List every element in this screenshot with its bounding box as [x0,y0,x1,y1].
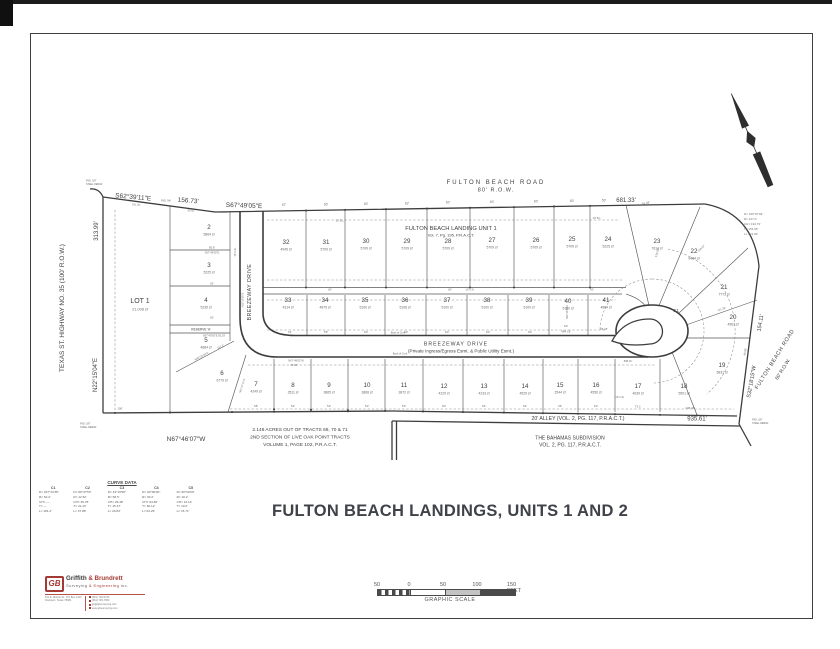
lot-corner-dot [273,411,275,413]
curve-value: L= 15.71' [174,509,208,514]
lot-number: 11 [401,382,408,389]
lot-area: 5864 sf [203,233,214,237]
dim-label: 60' [210,316,214,320]
lot-number: 36 [402,297,409,304]
fulton-beach-road-right-label: FULTON BEACH ROAD [754,328,796,390]
dim-label: 10' B.L. [593,216,602,220]
lot-number: 20 [730,314,737,321]
lot-corner-dot [513,286,515,288]
dim-label: 15' U.E. [233,247,237,256]
bahamas-label: THE BAHAMAS SUBDIVISION [535,436,605,442]
lot-area: 5831 sf [716,371,727,375]
dim-label: N67°49'02"W [288,359,304,363]
dim-label: 10' U.E. [615,395,624,399]
lot-area: 5100 sf [441,306,452,310]
dim-label: 64' [482,404,486,408]
curve-column: C3D= 34°19'58"R= 58.5'CH= 29.38'T= 15.37… [105,486,139,514]
lot-area: 3511 sf [288,391,299,395]
plat-drawing: 57'60'60'62'60'60'60'60'50'55.48'100.28'… [0,0,840,649]
dim-label: 65' [210,282,214,286]
dim-label: 50' [602,199,607,203]
lot-number: 18 [681,383,688,390]
lot-area: 3868 sf [361,391,372,395]
lot-area: 5235 sf [200,306,211,310]
lot-number: 3 [207,262,211,269]
dim-label: 53' [402,404,406,408]
lot-area: 7614 sf [651,247,662,251]
dim-label: 60' [490,200,495,204]
dim-label: 58' [254,404,258,408]
lot-number: 31 [323,239,330,246]
surveyor-name-2: Brundrett [95,575,123,582]
lot-number: 41 [603,297,610,304]
dim-label: 25.18' [600,327,608,331]
lot-number: 40 [565,298,572,305]
dim-label: S67°49'05"E [205,251,220,255]
dim-label: 10' B.L. [336,219,345,223]
lot-corner-dot [577,413,579,415]
lot-area: 5709 sf [401,247,412,251]
lot-number: 9 [327,382,331,389]
graphic-scale: 50 0 50 100 150 FEET GRAPHIC SCALE [360,582,540,603]
dim-31399: 313.99' [94,221,100,241]
lot-corner-dot [344,209,346,211]
lot-area: 5100 sf [359,306,370,310]
dim-label: 60' [445,330,449,334]
lot-area: 4556 sf [590,391,601,395]
curve-column: C5D= 90°00'00"R= 10.2'CH= 14.14'T= 10.2'… [174,486,208,514]
lot-area: 8484 sf [688,257,699,261]
fax-icon [89,600,91,602]
surveyor-phones: (361) 729-5476 (361) 729-7953 gb@gbsurve… [85,596,118,612]
lot-area: 4249 sf [250,390,261,394]
lot-number: 21 [721,284,728,291]
dim-label: 60' [364,202,369,206]
dim-label: 55' [324,330,328,334]
curve-value: L= 37.88' [70,509,104,514]
lot-corner-dot [426,286,428,288]
curve-data-table: CURVE DATAC1D= 267°34'38"R= 52.2'CH= —T=… [36,480,208,514]
dim-label: R= 127.0' [744,217,757,221]
dim-label: 117.2' [216,343,225,350]
dim-label: FND. MK [161,200,171,203]
web-icon [89,607,91,609]
address-line-2: Rockport, Texas 78381 [45,599,82,603]
dim-label: N22°10'55"E [241,292,245,307]
lot-area: 5709 sf [360,247,371,251]
dim-label: 50.69' [220,210,228,214]
dim-label: 60' [528,330,532,334]
lot-number: 19 [719,362,726,369]
web-text: www.gbsurveying.com [92,607,118,610]
curve-column: C4D= 90°00'00"R= 60.2'CH= 64.86'T= 60.12… [139,486,173,514]
lot-corner-dot [305,209,307,211]
lot-corner-dot [384,410,386,412]
lot-corner-dot [169,411,171,413]
lot-number: 14 [522,383,529,390]
lot-area: 5190 sf [562,307,573,311]
lot-corner-dot [344,286,346,288]
dim-15673: 156.73' [177,197,199,206]
lot-corner-dot [305,286,307,288]
lot-area: 2544 sf [554,391,565,395]
lot-corner-dot [513,206,515,208]
lot-corner-dot [385,208,387,210]
dim-label: 49.98' [742,347,747,356]
lot-corner-dot [659,414,661,416]
dim-label: 61' [288,330,292,334]
lot-number: 38 [484,297,491,304]
scale-tick-0: 0 [407,582,410,588]
lot-area: 5225 sf [602,245,613,249]
lot-area: 5100 sf [481,306,492,310]
plat-title: FULTON BEACH LANDINGS, UNITS 1 AND 2 [250,502,650,521]
acreage-note-2: 2ND SECTION OF LIVE OAK POINT TRACTS [250,435,350,441]
lot-area: 4233 sf [478,392,489,396]
breezeway-vertical-label: BREEZEWAY DRIVE [247,264,253,321]
dim-label: 62' [405,202,410,206]
lot-area: 7773 sf [718,293,729,297]
dim-93561: 935.61' [687,417,707,423]
lot-corner-dot [542,412,544,414]
acreage-note-3: VOLUME 1, PAGE 102, P.R.A.C.T. [263,442,337,448]
scale-seg-checker [378,590,410,595]
bearing-s62: S62°39'11"E [115,191,152,202]
lot-number: 24 [605,236,612,243]
dim-label: 484.18' [561,330,571,334]
lot-number: 37 [444,297,451,304]
lot-area: 5709 sf [566,245,577,249]
lot-area: 5225 sf [203,271,214,275]
lot-number: 35 [362,297,369,304]
lot-corner-dot [553,286,555,288]
lot-area: 4884 sf [600,306,611,310]
north-arrow-icon [726,90,775,188]
lot-corner-dot [553,205,555,207]
lot-number: 12 [441,383,448,390]
bearing-s67: S67°49'05"E [226,201,263,210]
dim-label: 47.84' [290,363,298,367]
lot-area: 4875 sf [319,306,330,310]
lot-number: 15 [557,382,564,389]
surveyor-logo: GB Griffith & Brundrett Surveying & Engi… [45,576,145,611]
dim-label: STEEL REBAR [86,183,103,186]
curve-value: L= 181.2' [36,509,70,514]
lot-area: 4314 sf [282,306,293,310]
dim-label: 100' [117,407,123,411]
scale-seg-3 [480,590,515,595]
scale-tick-50l: 50 [374,582,380,588]
unit1-ref: Vol. 7, Pg. 195, P.R.A.C.T. [428,233,474,238]
unit1-label: FULTON BEACH LANDING UNIT 1 [405,226,496,232]
lot-area: 4963 sf [727,323,738,327]
dim-label: 64' [523,404,527,408]
dim-label: 60' [364,330,368,334]
dim-681: 681.33' [616,198,636,204]
dim-label: 53' [327,404,331,408]
lot-corner-dot [385,286,387,288]
tagline-1: Surveying [66,583,89,588]
lot-number: 28 [445,238,452,245]
lot-number: 27 [489,237,496,244]
lot-area: 4884 sf [200,346,211,350]
gb-logo-letters: GB [49,580,61,588]
dim-label: 598.01' [624,359,633,363]
lot-area: 3865 sf [323,391,334,395]
lot-corner-dot [503,412,505,414]
surveyor-tagline: Surveying & Engineering inc. [66,583,129,588]
dim-label: Back of Curb [391,332,406,335]
dim-label: N01°37'31"E [238,378,246,393]
lot-number: 17 [635,383,642,390]
dim-label: 60' [328,288,332,292]
dim-label: 36' [558,404,562,408]
surveyor-contact: 611 E. Market St., PO Box 2122 Rockport,… [45,594,145,612]
lot-number: 34 [322,297,329,304]
scale-label: GRAPHIC SCALE [360,597,540,603]
lot-corner-dot [426,207,428,209]
lot-area: 5709 sf [530,246,541,250]
lot1-area: 21,008 sf [132,308,149,312]
curve-column: C1D= 267°34'38"R= 52.2'CH= —T= —L= 181.2… [36,486,70,514]
lot-number: 39 [526,297,533,304]
dim-label: 60' [442,404,446,408]
dim-label: 73.1' [635,405,642,409]
bearing-n67: N67°46'07"W [167,435,207,443]
lot-number: 22 [691,248,698,255]
dim-label: 60' [486,330,490,334]
lot-number: 5 [204,337,208,344]
phone-2: (361) 729-7953 [92,599,110,602]
dim-label: L= 221.92' [744,232,758,236]
breezeway-horizontal-label: BREEZEWAY DRIVE [424,342,488,348]
lot-number: 33 [285,297,292,304]
lot-number: 25 [569,236,576,243]
lot-corner-dot [114,412,116,414]
fulton-beach-road-top-label: FULTON BEACH ROAD [447,180,546,186]
lot-number: 16 [593,382,600,389]
fulton-beach-road-top-row: 80' R.O.W. [478,188,514,194]
lot-corner-dot [589,205,591,207]
dim-label: D= 100°07'03" [744,212,763,216]
curve-c1-tag: C1 [673,308,679,313]
lot-area: 4229 sf [438,392,449,396]
dim-label: CH= 194.73' [744,222,761,226]
gb-logo-mark: GB [45,576,64,592]
dim-label: 57' [282,203,287,207]
lot-corner-dot [310,409,312,411]
lot-number: 8 [291,382,295,389]
dim-15411: 154.11' [757,314,766,332]
acreage-note-1: 2.148 ACRES OUT OF TRACTS 69, 70 & 71 [252,427,348,433]
curve-value: L= 64.26' [139,509,173,514]
alley-label: 20' ALLEY (VOL. 2, PG. 117, P.R.A.C.T.) [532,416,625,422]
scale-seg-2 [445,590,480,595]
surveyor-name-1: Griffith [66,575,88,582]
dim-label: 52' [291,404,295,408]
lot-number: 23 [654,238,661,245]
scale-tick-50r: 50 [440,582,446,588]
tagline-2: Engineering [94,583,121,588]
lot-area: 5108 sf [399,306,410,310]
curve-value: L= 29.83' [105,509,139,514]
scale-ticks: 50 0 50 100 150 FEET [360,582,540,589]
dim-label: 60' [534,200,539,204]
lot-corner-dot [273,408,275,410]
email-icon [89,604,91,606]
highway-35-label: TEXAS ST. HIGHWAY NO. 35 (100' R.O.W.) [59,244,66,372]
lot-corner-dot [614,413,616,415]
dim-label: N48°20'29"E [194,351,210,362]
lot1-label: LOT 1 [130,298,149,305]
scale-bar [377,589,516,596]
lot-area: 5709 sf [442,247,453,251]
lot-area: 4639 sf [632,392,643,396]
lot-area: 5709 sf [320,248,331,252]
dimension-labels: 57'60'60'62'60'60'60'60'50'55.48'100.28'… [80,180,769,429]
lot-number: 29 [404,238,411,245]
lot-area: 5100 sf [523,306,534,310]
curve-table-title: CURVE DATA [36,480,208,485]
reserve-a-label: RESERVE 'A' [191,328,211,332]
web-line: www.gbsurveying.com [89,607,118,611]
lot-area: 3872 sf [398,391,409,395]
lot-corner-dot [422,410,424,412]
lot-corner-dot [462,411,464,413]
curve-column: C2D= 89°47'53"R= 12.52'CH= 35.78'T= 21.4… [70,486,104,514]
phone-icon [89,596,91,598]
lot-corner-dot [347,410,349,412]
tagline-3: inc. [121,583,129,588]
dim-label: 60' [570,199,575,203]
dim-label: 63' [594,404,598,408]
scale-seg-1 [410,590,445,595]
dim-label: 60' [324,203,329,207]
dim-label: 10' U.E. [465,288,474,292]
dim-label: 60' [448,288,452,292]
dim-label: STEEL REBAR [752,422,769,425]
dim-label: 103.87' [697,243,707,252]
scale-tick-100: 100 [472,582,481,588]
bahamas-ref: VOL. 2, PG. 117, P.R.A.C.T. [539,443,601,449]
dim-label: 50' [590,288,594,292]
email-text: gb@gbsurveying.com [92,603,117,606]
lot-number: 7 [254,381,258,388]
lot-number: 10 [364,382,371,389]
surveyor-address: 611 E. Market St., PO Box 2122 Rockport,… [45,596,82,612]
lot-area: 5501 sf [678,392,689,396]
dim-label: 60' [564,324,568,328]
plat-sheet: 57'60'60'62'60'60'60'60'50'55.48'100.28'… [0,0,840,649]
lot-number: 4 [204,297,208,304]
bearing-n22: N22°15'04"E [93,358,99,392]
dim-label: Back of Curb [393,353,408,356]
lot-area: 4945 sf [280,248,291,252]
breezeway-easement-note: (Private Ingress/Egress Esmt. & Public U… [408,349,514,354]
dim-label: 100.28' [132,202,141,207]
lot-number: 6 [220,370,224,377]
lot-area: 4529 sf [519,392,530,396]
lot-area: 5709 sf [486,246,497,250]
lot-corner-dot [231,411,233,413]
lot-area: 6779 sf [216,379,227,383]
lot-corner-dot [469,207,471,209]
lot-number: 2 [207,224,211,231]
lot-number: 32 [283,239,290,246]
dim-label: 53' [365,404,369,408]
dim-label: 60' [446,201,451,205]
lot-number: 13 [481,383,488,390]
lot-number: 26 [533,237,540,244]
dim-label: 50.52' [187,208,195,213]
dim-label: STEEL REBAR [80,426,97,429]
dim-label: 85.8' [209,246,215,250]
lot-number: 30 [363,238,370,245]
bearing-s32: S32°18'15"W [746,365,758,399]
dim-label: 108.38' [685,406,695,410]
dim-label: T= 151.65' [744,227,759,231]
